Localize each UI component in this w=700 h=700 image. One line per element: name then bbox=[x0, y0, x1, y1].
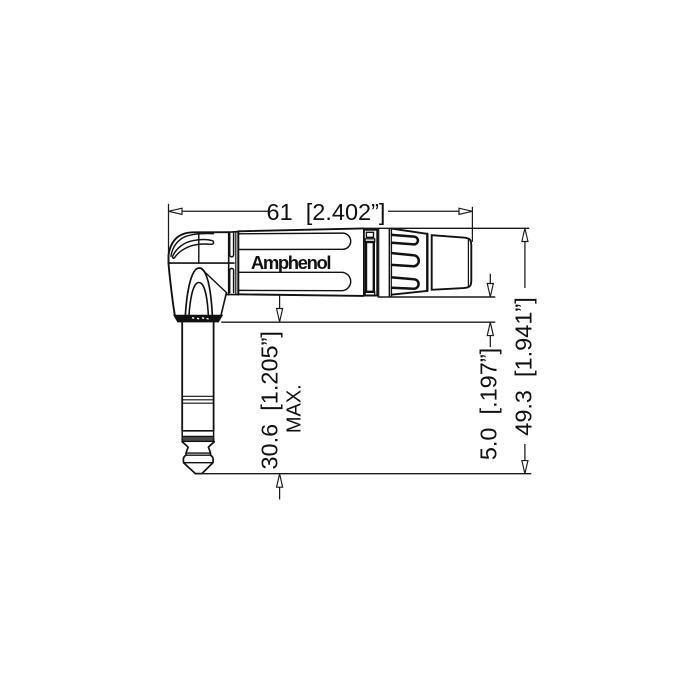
svg-text:Amphenol: Amphenol bbox=[251, 252, 331, 273]
svg-text:49.3 [1.941”]: 49.3 [1.941”] bbox=[511, 297, 537, 436]
svg-text:61 [2.402”]: 61 [2.402”] bbox=[267, 199, 386, 225]
svg-text:MAX.: MAX. bbox=[283, 384, 305, 433]
svg-text:30.6 [1.205”]: 30.6 [1.205”] bbox=[257, 331, 283, 470]
svg-text:5.0 [.197”]: 5.0 [.197”] bbox=[475, 348, 501, 460]
